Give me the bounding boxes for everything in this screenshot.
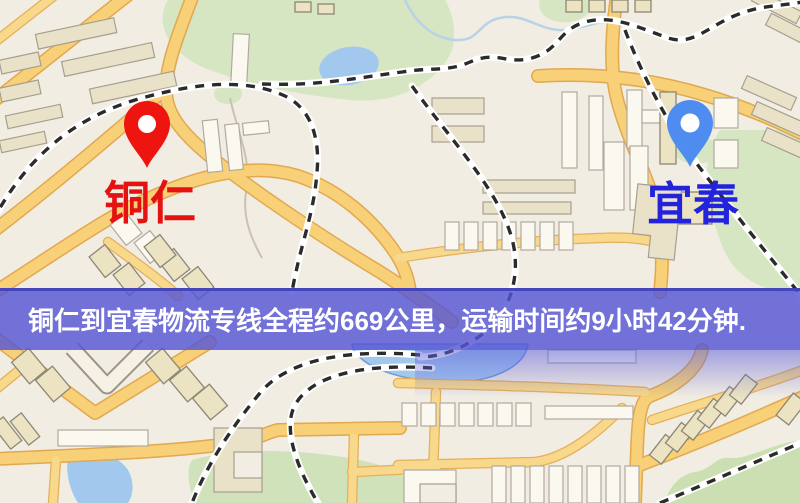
origin-label: 铜仁 [104,177,196,229]
pin-hole [138,115,156,133]
info-banner: 铜仁到宜春物流专线全程约669公里，运输时间约9小时42分钟. [0,288,800,350]
banner-top-edge [0,288,800,291]
destination-label: 宜春 [647,178,739,230]
map-screenshot: 铜仁到宜春物流专线全程约669公里，运输时间约9小时42分钟. 铜仁 宜春 [0,0,800,503]
banner-text: 铜仁到宜春物流专线全程约669公里，运输时间约9小时42分钟. [28,306,746,336]
pin-hole [681,114,700,133]
banner-fade [415,350,800,398]
